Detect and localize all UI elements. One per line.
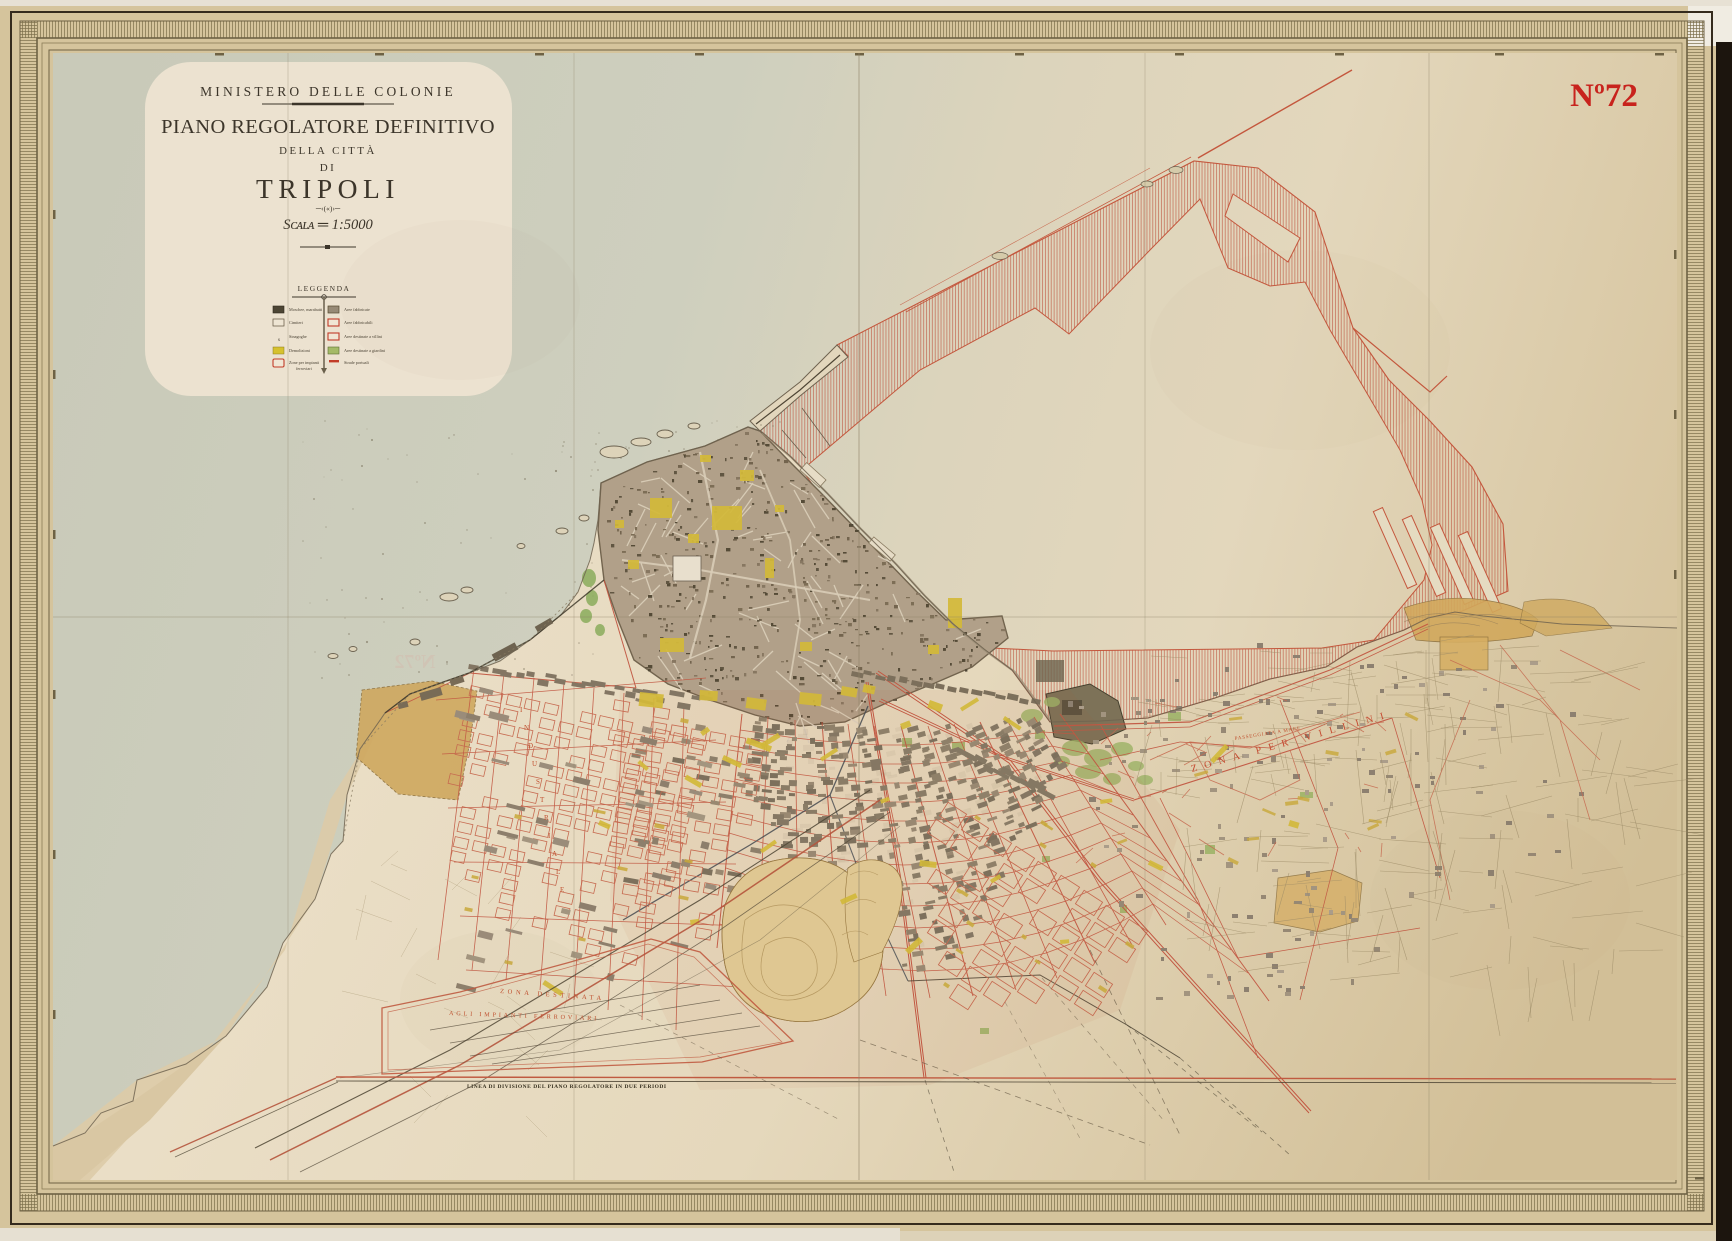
svg-text:Strade portuali: Strade portuali: [344, 360, 370, 365]
svg-text:Nº72: Nº72: [1570, 78, 1638, 114]
svg-text:R: R: [544, 814, 549, 822]
svg-text:ferroviari: ferroviari: [296, 366, 313, 371]
svg-text:Cimiteri: Cimiteri: [289, 320, 304, 325]
svg-text:Nº72: Nº72: [394, 651, 435, 673]
svg-text:A: A: [552, 850, 557, 858]
svg-text:Zone per impianti: Zone per impianti: [289, 360, 320, 365]
svg-text:U: U: [532, 760, 537, 768]
svg-text:DELLA CITTÀ: DELLA CITTÀ: [279, 145, 377, 157]
svg-text:MINISTERO DELLE COLONIE: MINISTERO DELLE COLONIE: [200, 84, 456, 99]
svg-text:S: S: [536, 778, 540, 786]
svg-text:Sᴄᴀʟᴀ ═ 1:5000: Sᴄᴀʟᴀ ═ 1:5000: [283, 217, 373, 233]
svg-text:L: L: [556, 868, 560, 876]
svg-text:D: D: [528, 742, 533, 750]
svg-text:T: T: [540, 796, 545, 804]
svg-text:Sinagoghe: Sinagoghe: [289, 334, 307, 339]
svg-text:Demolizioni: Demolizioni: [289, 348, 311, 353]
svg-text:N: N: [524, 724, 529, 732]
svg-text:PIANO REGOLATORE DEFINITIVO: PIANO REGOLATORE DEFINITIVO: [161, 116, 495, 138]
svg-text:LINEA DI DIVISIONE DEL PIANO R: LINEA DI DIVISIONE DEL PIANO REGOLATORE …: [467, 1084, 666, 1090]
svg-text:s: s: [278, 338, 280, 343]
svg-text:─‹(«)›─: ─‹(«)›─: [315, 204, 341, 213]
svg-text:E: E: [560, 886, 564, 894]
svg-text:TRIPOLI: TRIPOLI: [256, 173, 400, 204]
